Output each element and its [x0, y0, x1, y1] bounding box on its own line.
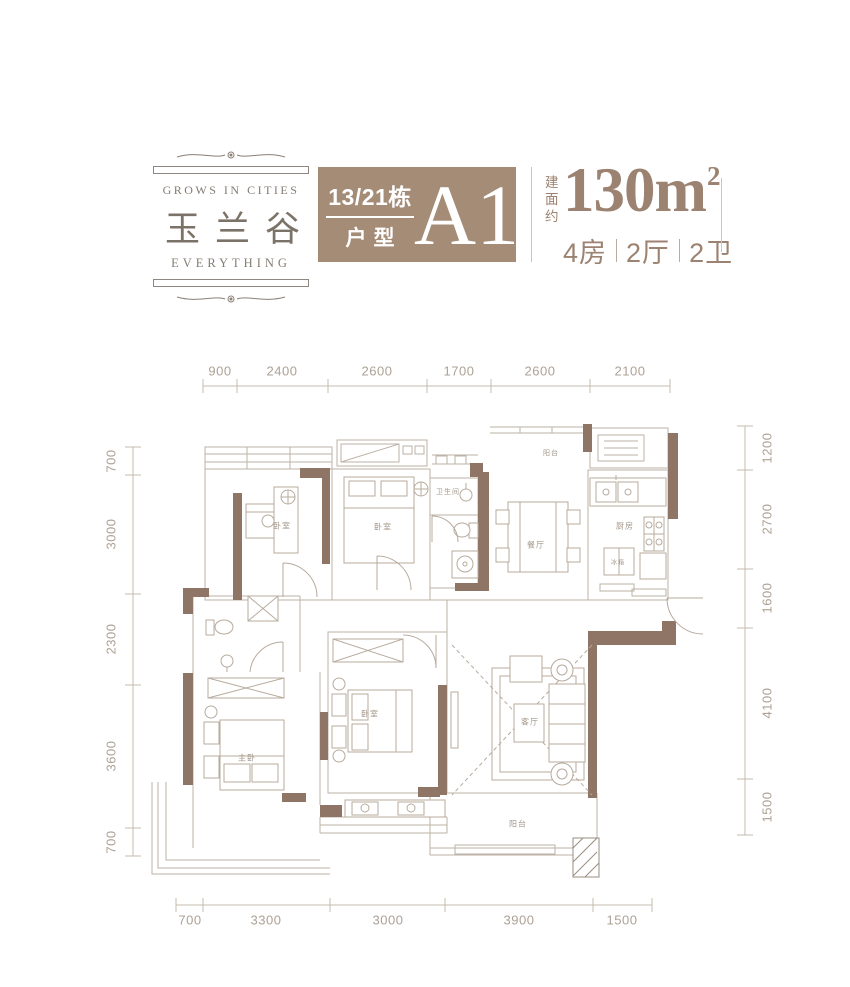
dim-label: 1500 [607, 913, 638, 928]
room-label: 阳台 [509, 819, 527, 830]
room-label: 冰箱 [611, 558, 625, 567]
room-label: 餐厅 [527, 540, 545, 551]
room-label: 卧室 [273, 521, 291, 532]
dim-label: 3300 [251, 913, 282, 928]
dim-label: 2400 [267, 364, 298, 379]
dim-label: 3000 [373, 913, 404, 928]
dim-label: 2100 [615, 364, 646, 379]
dim-label: 1200 [760, 433, 775, 464]
room-label: 阳台 [543, 448, 559, 458]
room-label: 卧室 [361, 709, 379, 720]
room-label: 卧室 [374, 522, 392, 533]
dim-label: 2300 [104, 624, 119, 655]
room-label: 卫生间 [436, 487, 460, 497]
dim-label: 900 [208, 364, 231, 379]
dim-label: 2600 [362, 364, 393, 379]
room-label: 厨房 [616, 521, 634, 532]
dim-label: 700 [178, 913, 201, 928]
dim-label: 1700 [444, 364, 475, 379]
dim-label: 2600 [525, 364, 556, 379]
dim-label: 4100 [760, 688, 775, 719]
plan-label-layer: 9002400260017002600210070033003000390015… [0, 0, 850, 987]
dim-label: 2700 [760, 504, 775, 535]
dim-label: 3600 [104, 741, 119, 772]
room-label: 主卧 [238, 753, 256, 764]
dim-label: 700 [104, 830, 119, 853]
dim-label: 3900 [504, 913, 535, 928]
room-label: 客厅 [521, 717, 539, 728]
dim-label: 1500 [760, 792, 775, 823]
dim-label: 700 [104, 449, 119, 472]
dim-label: 3000 [104, 519, 119, 550]
dim-label: 1600 [760, 583, 775, 614]
